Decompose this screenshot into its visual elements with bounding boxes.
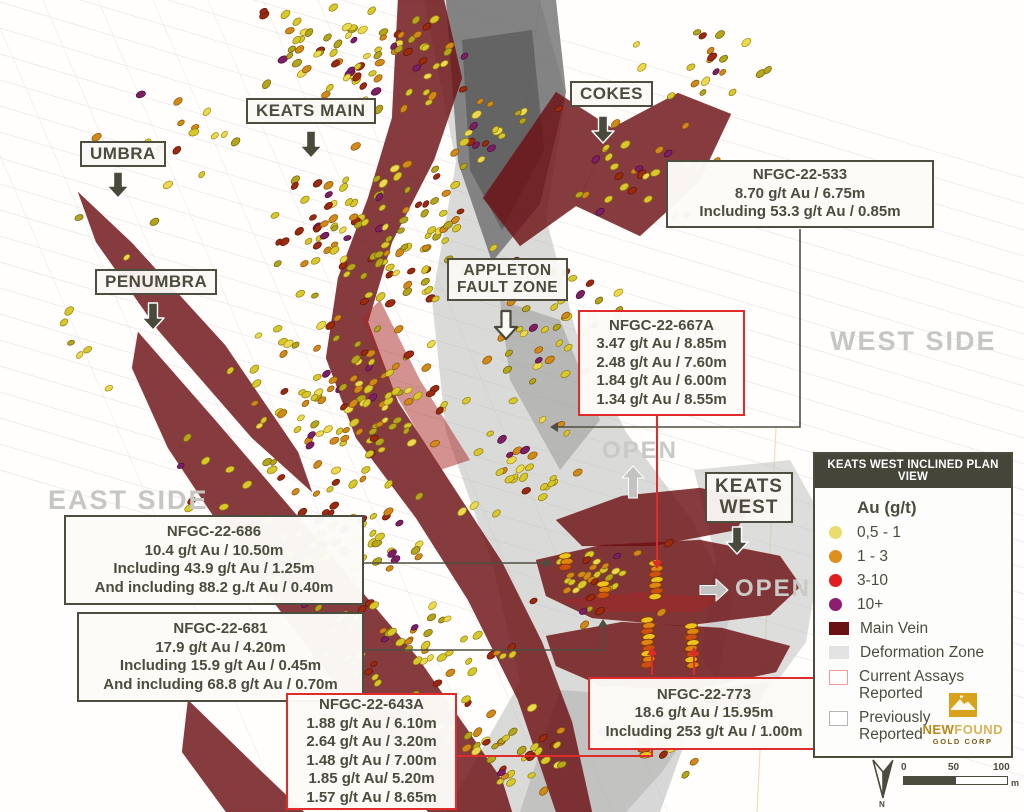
assay-line: 1.48 g/t Au / 7.00m [290,752,453,771]
callout-nfgc-22-667a: NFGC-22-667A 3.47 g/t Au / 8.85m 2.48 g/… [578,310,745,416]
grade-label: 10+ [857,596,883,613]
hole-id: NFGC-22-773 [592,686,816,705]
open-label-north: OPEN [602,437,678,465]
deformation-swatch [829,646,849,659]
assay-line: 1.84 g/t Au / 6.00m [582,372,741,391]
keats-west-inclined-plan-view: EAST SIDE WEST SIDE OPEN OPEN UMBRA KEAT… [0,0,1024,812]
grade-dot-top-icon [829,598,842,611]
previously-reported-label: Previously Reported [859,709,931,743]
assay-line: Including 53.3 g/t Au / 0.85m [670,203,930,222]
hole-id: NFGC-22-533 [670,166,930,185]
penumbra-label: PENUMBRA [95,269,217,295]
assay-line: 17.9 g/t Au / 4.20m [81,639,360,658]
callout-nfgc-22-681: NFGC-22-681 17.9 g/t Au / 4.20m Includin… [77,612,364,702]
grade-label: 0,5 - 1 [857,524,901,541]
assay-line: 1.85 g/t Au/ 5.20m [290,770,453,789]
assay-line: Including 253 g/t Au / 1.00m [592,723,816,742]
legend-au-heading: Au (g/t) [857,498,1011,518]
newfound-logo-icon [948,692,978,718]
scale-tick-100: 100 [993,762,1010,773]
previously-reported-swatch [829,711,848,726]
main-vein-label: Main Vein [860,620,928,637]
legend-grade-row: 1 - 3 [829,548,1011,565]
assay-line: 2.64 g/t Au / 3.20m [290,733,453,752]
appleton-line1: APPLETON [464,262,552,279]
legend-main-vein-row: Main Vein [829,620,1011,637]
scale-unit: m [1011,778,1019,788]
logo-wordmark: NEWFOUND [922,723,1003,736]
scale-bar-group: N 0 50 100 m [866,754,1022,810]
assay-line: And including 88.2 g./t Au / 0.40m [68,579,360,598]
grade-label: 1 - 3 [857,548,888,565]
callout-nfgc-22-686: NFGC-22-686 10.4 g/t Au / 10.50m Includi… [64,515,364,605]
assay-line: 1.34 g/t Au / 8.55m [582,391,741,410]
scale-bar-fill [904,777,956,784]
open-label-east: OPEN [735,575,811,603]
callout-nfgc-22-533: NFGC-22-533 8.70 g/t Au / 6.75m Includin… [666,160,934,228]
assay-line: 18.6 g/t Au / 15.95m [592,704,816,723]
grade-dot-mid-icon [829,550,842,563]
newfound-gold-logo: NEWFOUND GOLD CORP [922,692,1003,746]
hole-id: NFGC-22-681 [81,620,360,639]
assay-line: 10.4 g/t Au / 10.50m [68,542,360,561]
grade-dot-low-icon [829,526,842,539]
hole-id: NFGC-22-667A [582,317,741,336]
keats-west-line2: WEST [720,497,779,518]
appleton-fault-zone-label: APPLETON FAULT ZONE [447,258,568,301]
callout-nfgc-22-773: NFGC-22-773 18.6 g/t Au / 15.95m Includi… [588,677,820,750]
grade-dot-high-icon [829,574,842,587]
east-side-label: EAST SIDE [48,485,209,516]
assay-line: And including 68.8 g/t Au / 0.70m [81,676,360,695]
main-vein-swatch [829,622,849,635]
current-assays-swatch [829,670,848,685]
assay-line: 1.88 g/t Au / 6.10m [290,715,453,734]
keats-main-label: KEATS MAIN [246,98,376,124]
assay-line: 2.48 g/t Au / 7.60m [582,354,741,373]
cokes-label: COKES [570,81,653,107]
deformation-label: Deformation Zone [860,644,984,661]
umbra-label: UMBRA [80,141,166,167]
logo-subtitle: GOLD CORP [922,737,1003,746]
keats-west-label: KEATS WEST [705,472,793,523]
assay-line: Including 15.9 g/t Au / 0.45m [81,657,360,676]
appleton-line2: FAULT ZONE [457,279,558,296]
assay-line: Including 43.9 g/t Au / 1.25m [68,560,360,579]
callout-nfgc-22-643a: NFGC-22-643A 1.88 g/t Au / 6.10m 2.64 g/… [286,693,457,810]
hole-id: NFGC-22-643A [290,696,453,715]
assay-line: 1.57 g/t Au / 8.65m [290,789,453,808]
legend-grade-row: 10+ [829,596,1011,613]
assay-line: 3.47 g/t Au / 8.85m [582,335,741,354]
grade-label: 3-10 [857,572,888,589]
north-label: N [879,800,885,809]
assay-line: 8.70 g/t Au / 6.75m [670,185,930,204]
hole-id: NFGC-22-686 [68,523,360,542]
legend-grade-row: 3-10 [829,572,1011,589]
scale-tick-50: 50 [948,762,959,773]
legend-grade-row: 0,5 - 1 [829,524,1011,541]
legend-panel: KEATS WEST INCLINED PLAN VIEW Au (g/t) 0… [813,452,1013,758]
scale-tick-0: 0 [901,762,907,773]
legend-deformation-row: Deformation Zone [829,644,1011,661]
keats-west-line1: KEATS [715,476,783,497]
west-side-label: WEST SIDE [830,326,997,357]
legend-title: KEATS WEST INCLINED PLAN VIEW [815,454,1011,488]
scale-bar [903,776,1008,785]
